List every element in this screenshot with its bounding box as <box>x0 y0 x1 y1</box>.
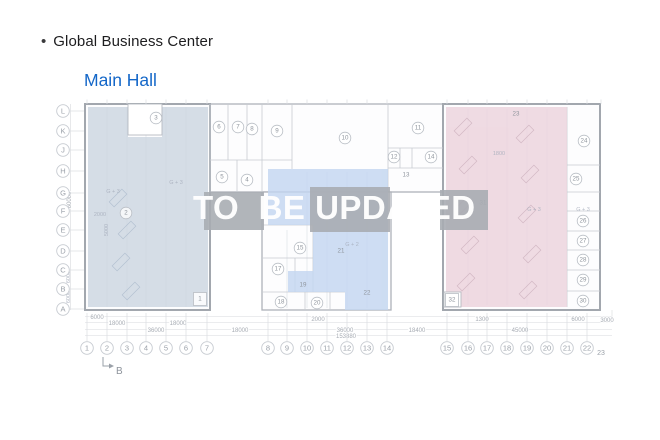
plan-annotation: G + 3 <box>169 180 183 186</box>
plan-annotation: G + 3 <box>527 207 541 213</box>
grid-column-label: 9 <box>285 344 289 353</box>
grid-column-label: 2 <box>105 344 109 353</box>
grid-row-label: C <box>60 266 66 275</box>
room-number: 22 <box>364 290 371 297</box>
room-number: 13 <box>403 172 410 179</box>
dimension-label: 18000 <box>170 321 187 327</box>
room-number: 15 <box>297 245 304 252</box>
grid-column-label: 19 <box>523 344 531 353</box>
grid-row-label: J <box>61 146 65 155</box>
dimension-label: 6000 <box>571 317 585 323</box>
floor-plan: G + 3G + 320005000G + 2G + 3G + 31800600… <box>0 0 660 440</box>
room-number: 7 <box>236 124 240 131</box>
grid-row-label: A <box>60 305 65 314</box>
dimension-label: 18000 <box>109 321 126 327</box>
grid-row-label: H <box>60 167 65 176</box>
grid-row-label: G <box>60 189 66 198</box>
grid-column-label: 16 <box>464 344 472 353</box>
room-number: 23 <box>513 111 520 118</box>
grid-row-label: L <box>61 107 65 116</box>
grid-column-label: 22 <box>583 344 591 353</box>
room-number: 32 <box>449 297 456 304</box>
room-number: 18 <box>278 299 285 306</box>
dimension-label: 3000 <box>600 318 614 324</box>
grid-column-label: 5 <box>164 344 168 353</box>
plan-annotation: 5000 <box>104 224 110 236</box>
section-marker-label: B <box>116 366 123 377</box>
dimension-label: 18400 <box>409 328 426 334</box>
grid-column-label: 11 <box>323 344 331 353</box>
grid-row-label: E <box>60 226 65 235</box>
dimension-label: 18000 <box>232 328 249 334</box>
watermark-text: TO BE UPDATED <box>193 189 476 227</box>
grid-column-label: 1 <box>85 344 89 353</box>
plan-annotation: 1800 <box>493 151 505 157</box>
room-number: 21 <box>338 248 345 255</box>
plan-annotation: G + 2 <box>345 242 359 248</box>
grid-column-label: 23 <box>597 350 605 357</box>
room-number: 4 <box>245 177 249 184</box>
grid-column-label: 13 <box>363 344 371 353</box>
room-number: 29 <box>580 277 587 284</box>
dimension-label: 45000 <box>512 328 529 334</box>
room-number: 24 <box>581 138 588 145</box>
room-number: 27 <box>580 238 587 245</box>
left-zone <box>88 107 208 307</box>
page: • Global Business Center Main Hall <box>0 0 660 440</box>
room-number: 28 <box>580 257 587 264</box>
room-number: 6 <box>217 124 221 131</box>
room-number: 17 <box>275 266 282 273</box>
grid-column-label: 8 <box>266 344 270 353</box>
grid-column-label: 17 <box>483 344 491 353</box>
grid-column-label: 4 <box>144 344 148 353</box>
grid-column-label: 18 <box>503 344 511 353</box>
section-marker: B <box>103 357 123 377</box>
plan-annotation: 2000 <box>94 212 106 218</box>
dimension-label: 6000 <box>90 315 104 321</box>
grid-column-label: 6 <box>184 344 188 353</box>
room-number: 9 <box>275 128 279 135</box>
room-number: 20 <box>314 300 321 307</box>
room-number: 3 <box>154 115 158 122</box>
room-number: 12 <box>391 154 398 161</box>
room-number: 30 <box>580 298 587 305</box>
grid-column-label: 14 <box>383 344 391 353</box>
grid-row-label: F <box>61 207 66 216</box>
room-number: 2 <box>124 210 128 217</box>
room-number: 19 <box>300 282 307 289</box>
grid-column-label: 20 <box>543 344 551 353</box>
grid-row-label: K <box>60 127 65 136</box>
room-number: 1 <box>198 296 202 303</box>
room-number: 10 <box>342 135 349 142</box>
room-number: 5 <box>220 174 224 181</box>
grid-row-label: D <box>60 247 66 256</box>
plan-annotation: G + 3 <box>106 189 120 195</box>
grid-row-label: B <box>60 285 65 294</box>
grid-column-label: 15 <box>443 344 451 353</box>
grid-column-label: 12 <box>343 344 351 353</box>
grid-column-label: 7 <box>205 344 209 353</box>
room-number: 8 <box>250 126 254 133</box>
dimension-label: 2000 <box>311 317 325 323</box>
room-number: 11 <box>415 125 422 132</box>
room-number: 14 <box>428 154 435 161</box>
room-number: 26 <box>580 218 587 225</box>
plan-annotation: G + 3 <box>576 207 590 213</box>
dimension-label: 36000 <box>148 328 165 334</box>
grid-column-label: 10 <box>303 344 311 353</box>
room-number: 25 <box>573 176 580 183</box>
dimension-label: 153880 <box>336 334 357 340</box>
grid-column-label: 3 <box>125 344 129 353</box>
grid-column-label: 21 <box>563 344 571 353</box>
